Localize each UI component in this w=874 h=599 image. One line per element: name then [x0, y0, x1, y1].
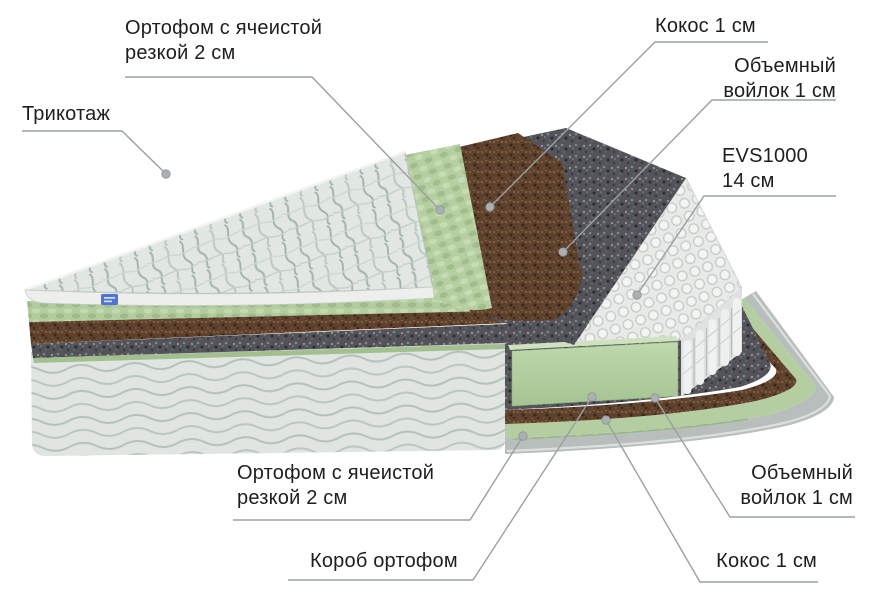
brand-tag [101, 294, 118, 305]
label-felt-bottom-line1: Объемный [733, 461, 853, 486]
mattress-layers-diagram: Трикотаж Ортофом с ячеистой резкой 2 см … [0, 0, 874, 599]
label-knit: Трикотаж [22, 102, 110, 127]
leader-dot [519, 432, 527, 440]
label-felt-top-line1: Объемный [713, 54, 836, 79]
label-foam-top-line1: Ортофом с ячеистой [125, 16, 322, 41]
label-foam-bottom-line2: резкой 2 см [237, 486, 434, 511]
label-foam-top: Ортофом с ячеистой резкой 2 см [125, 16, 322, 66]
leader-dot [559, 248, 567, 256]
label-foam-bottom-line1: Ортофом с ячеистой [237, 461, 434, 486]
label-foam-top-line2: резкой 2 см [125, 41, 322, 66]
label-felt-top: Объемный войлок 1 см [713, 54, 836, 104]
label-springs-line2: 14 см [722, 169, 808, 194]
leader-dot [486, 203, 494, 211]
leader-dot [162, 170, 170, 178]
label-knit-text: Трикотаж [22, 102, 110, 127]
leader-dot [602, 416, 610, 424]
leader-dot [651, 394, 659, 402]
label-springs-line1: EVS1000 [722, 144, 808, 169]
label-coconut-bottom: Кокос 1 см [700, 549, 817, 574]
label-coconut-bottom-text: Кокос 1 см [700, 549, 817, 574]
label-foam-bottom: Ортофом с ячеистой резкой 2 см [237, 461, 434, 511]
leader-knit [22, 131, 166, 174]
leader-dot [436, 206, 444, 214]
leader-dot [588, 393, 596, 401]
label-springs: EVS1000 14 см [722, 144, 808, 194]
label-felt-top-line2: войлок 1 см [713, 79, 836, 104]
label-box-text: Короб ортофом [310, 549, 458, 574]
label-box: Короб ортофом [310, 549, 458, 574]
label-felt-bottom-line2: войлок 1 см [733, 486, 853, 511]
label-coconut-top: Кокос 1 см [655, 14, 756, 39]
layer-knit-topper [25, 152, 434, 306]
label-felt-bottom: Объемный войлок 1 см [733, 461, 853, 511]
leader-dot [633, 291, 641, 299]
label-coconut-top-text: Кокос 1 см [655, 14, 756, 39]
